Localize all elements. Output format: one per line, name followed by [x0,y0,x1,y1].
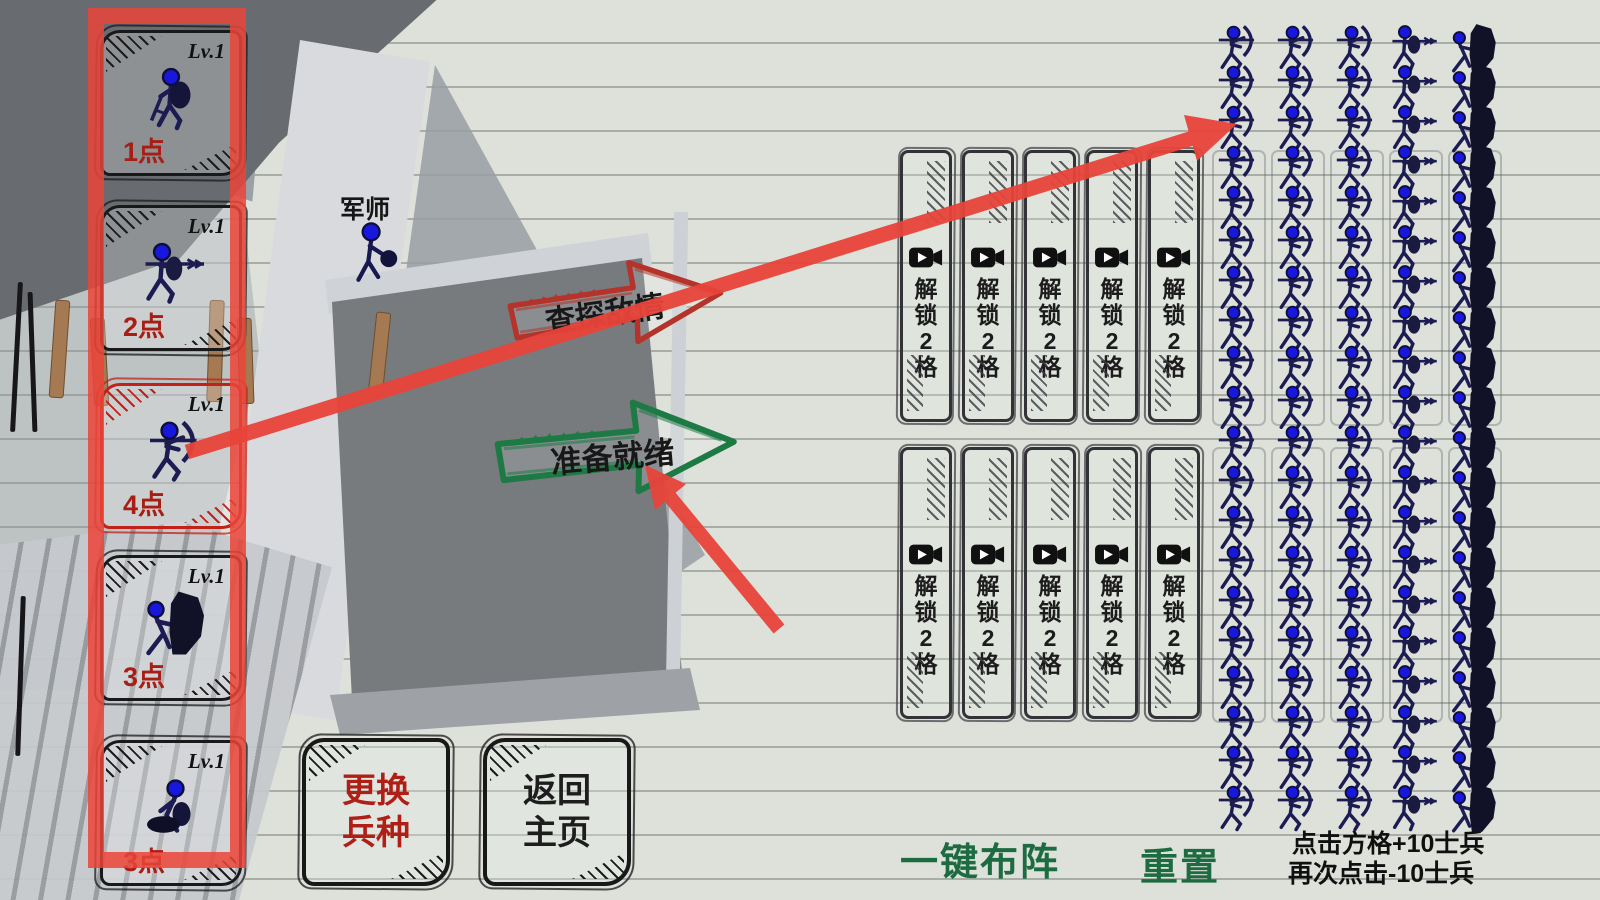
unlock-label-char: 锁 [1027,302,1073,328]
sketch-hatch [1051,458,1069,520]
sketch-hatch [184,669,236,695]
unlock-label-char: 解 [1089,573,1135,599]
auto-formation-button[interactable]: 一键布阵 [900,831,1060,886]
sketch-hatch [1093,652,1109,708]
unlock-label-char: 解 [965,573,1011,599]
unlock-label-char: 2 [1089,328,1135,354]
unit-level-label: Lv.1 [188,564,225,589]
unlock-label-char: 2 [965,328,1011,354]
sketch-hatch [184,144,236,170]
unlock-label-char: 2 [1151,328,1197,354]
unit-card-spearman[interactable]: Lv.1 2点 [100,205,242,351]
video-camera-icon [970,542,1006,567]
sketch-hatch [989,161,1007,223]
unlock-label-char: 2 [903,328,949,354]
unit-figure [141,240,207,306]
sketch-hatch [1113,161,1131,223]
unlock-label-char: 2 [1027,328,1073,354]
video-camera-icon [1156,245,1192,270]
unit-level-label: Lv.1 [188,214,225,239]
unlock-label-char: 解 [1027,573,1073,599]
unit-level-label: Lv.1 [188,39,225,64]
reset-button[interactable]: 重置 [1140,836,1220,891]
unlock-label-char: 锁 [903,302,949,328]
video-camera-icon [1032,245,1068,270]
unlock-label-char: 解 [1151,573,1197,599]
unit-figure [141,590,207,656]
unlock-label-char: 2 [1089,625,1135,651]
unit-figure [141,775,207,841]
unit-cost-label: 4点 [123,483,165,522]
sketch-hatch [1031,355,1047,411]
video-camera-icon [908,542,944,567]
unit-card-shieldman[interactable]: Lv.1 3点 [100,555,242,701]
sketch-hatch [184,319,236,345]
sketch-hatch [907,652,923,708]
unit-figure [141,418,207,484]
sketch-hatch [1155,355,1171,411]
sketch-hatch [572,853,624,879]
unlock-label-char: 解 [903,573,949,599]
unlock-label-char: 2 [1027,625,1073,651]
unlock-label-char: 解 [965,276,1011,302]
unlock-label-char: 解 [1089,276,1135,302]
unit-figure [141,65,207,131]
unlock-label-char: 解 [1027,276,1073,302]
locked-slot-unlock-button[interactable]: 解锁2格 [900,150,952,422]
unit-level-label: Lv.1 [188,392,225,417]
locked-slot-unlock-button[interactable]: 解锁2格 [1086,150,1138,422]
unlock-label-char: 锁 [1089,302,1135,328]
unit-cost-label: 1点 [123,130,165,169]
video-camera-icon [1156,542,1192,567]
locked-slot-unlock-button[interactable]: 解锁2格 [1148,447,1200,719]
unlock-label-char: 解 [1151,276,1197,302]
sketch-hatch [969,355,985,411]
sketch-hatch [1175,161,1193,223]
advisor-figure[interactable] [350,222,412,284]
locked-slot-unlock-button[interactable]: 解锁2格 [962,150,1014,422]
sketch-hatch [391,853,443,879]
sketch-hatch [184,497,236,523]
unlock-label-char: 锁 [1151,599,1197,625]
formation-screen: 解锁2格 解锁2格 解锁2格 解锁2格 解锁2格 解锁2格 解锁2格 解锁2格 [0,0,1600,900]
locked-slot-unlock-button[interactable]: 解锁2格 [1148,150,1200,422]
unlock-label-char: 2 [903,625,949,651]
video-camera-icon [908,245,944,270]
unlock-label-char: 锁 [1089,599,1135,625]
unit-cost-label: 3点 [123,840,165,879]
unlock-label-char: 解 [903,276,949,302]
back-home-button[interactable]: 返回主页 [483,738,631,886]
sketch-hatch [907,355,923,411]
locked-slot-unlock-button[interactable]: 解锁2格 [962,447,1014,719]
unit-card-crossbowman[interactable]: Lv.1 3点 [100,740,242,886]
sketch-hatch [989,458,1007,520]
unlock-label-char: 锁 [965,302,1011,328]
unit-level-label: Lv.1 [188,749,225,774]
locked-slot-unlock-button[interactable]: 解锁2格 [900,447,952,719]
video-camera-icon [1094,542,1130,567]
locked-slot-unlock-button[interactable]: 解锁2格 [1086,447,1138,719]
video-camera-icon [1032,542,1068,567]
unlock-label-char: 2 [1151,625,1197,651]
unlock-label-char: 2 [965,625,1011,651]
sketch-hatch [927,458,945,520]
back-home-label: 返回主页 [519,770,595,855]
unlock-label-char: 锁 [1151,302,1197,328]
ready-button[interactable]: 准备就绪 [481,379,749,517]
unlock-label-char: 锁 [1027,599,1073,625]
sketch-hatch [184,854,236,880]
unit-cost-label: 3点 [123,655,165,694]
unlock-label-char: 锁 [903,599,949,625]
sketch-hatch [969,652,985,708]
unit-cost-label: 2点 [123,305,165,344]
sketch-hatch [1155,652,1171,708]
unlock-label-char: 锁 [965,599,1011,625]
soldier-archer [1212,783,1262,833]
video-camera-icon [1094,245,1130,270]
hint-remove-soldiers: 再次点击-10士兵 [1288,854,1474,890]
sketch-hatch [1031,652,1047,708]
video-camera-icon [970,245,1006,270]
change-units-button[interactable]: 更换兵种 [302,738,450,886]
sketch-hatch [1175,458,1193,520]
sketch-hatch [1113,458,1131,520]
unit-card-swordsman[interactable]: Lv.1 1点 [100,30,242,176]
change-units-label: 更换兵种 [338,770,414,855]
advisor-label: 军师 [340,190,390,226]
sketch-hatch [1051,161,1069,223]
locked-slot-unlock-button[interactable]: 解锁2格 [1024,150,1076,422]
locked-slot-unlock-button[interactable]: 解锁2格 [1024,447,1076,719]
unit-card-archer-selected[interactable]: Lv.1 4点 [100,383,242,529]
sketch-hatch [1093,355,1109,411]
sketch-hatch [927,161,945,223]
